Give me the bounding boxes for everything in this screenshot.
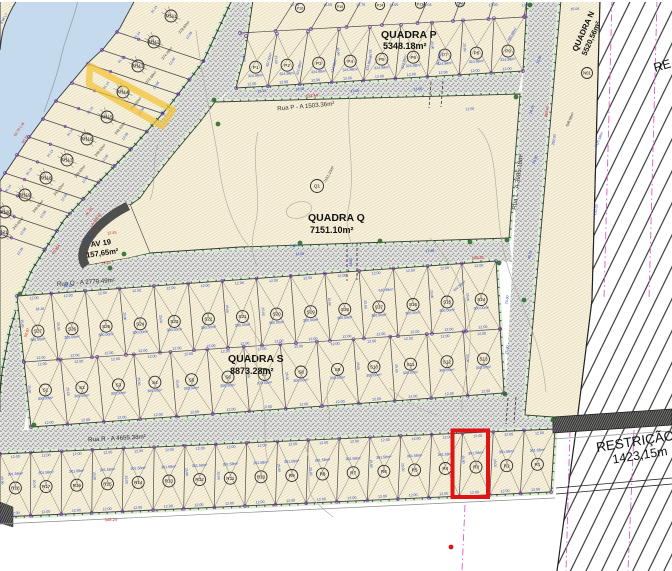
- svg-text:12.00: 12.00: [477, 331, 486, 336]
- svg-text:25.00: 25.00: [27, 385, 32, 393]
- svg-text:25.00: 25.00: [32, 480, 37, 489]
- svg-text:25.00: 25.00: [336, 47, 341, 55]
- svg-text:S19: S19: [307, 309, 316, 314]
- svg-text:12.00: 12.00: [299, 402, 308, 407]
- svg-text:25.00: 25.00: [461, 455, 466, 463]
- svg-text:12.00: 12.00: [148, 354, 157, 359]
- svg-text:12.00: 12.00: [367, 339, 376, 344]
- svg-text:12.00: 12.00: [478, 325, 487, 330]
- svg-text:12.00: 12.00: [350, 439, 359, 444]
- svg-text:25.00: 25.00: [137, 377, 142, 385]
- svg-text:25.00: 25.00: [242, 54, 247, 62]
- svg-text:12.00: 12.00: [442, 435, 451, 440]
- svg-text:25.00: 25.00: [493, 459, 498, 468]
- svg-text:25.00: 25.00: [20, 319, 25, 327]
- svg-text:S21: S21: [238, 314, 247, 319]
- svg-text:QUADRA S: QUADRA S: [228, 353, 284, 365]
- svg-text:R18: R18: [11, 486, 20, 491]
- svg-text:12.00: 12.00: [481, 389, 490, 394]
- svg-text:25.00: 25.00: [363, 300, 368, 309]
- svg-text:12.00: 12.00: [29, 296, 38, 301]
- svg-text:25.00: 25.00: [66, 387, 71, 396]
- svg-text:12.00: 12.00: [375, 74, 384, 79]
- svg-text:12.00: 12.00: [194, 503, 203, 508]
- svg-text:S17: S17: [375, 305, 384, 310]
- svg-text:12.00: 12.00: [11, 454, 20, 459]
- svg-text:166.81: 166.81: [472, 255, 485, 261]
- svg-text:R2: R2: [504, 463, 510, 468]
- svg-text:12.00: 12.00: [133, 505, 142, 510]
- svg-text:S15: S15: [443, 300, 452, 305]
- svg-text:25.00: 25.00: [225, 305, 230, 313]
- svg-text:12.00: 12.00: [240, 341, 249, 346]
- svg-text:12.00: 12.00: [288, 442, 297, 447]
- svg-text:12.00: 12.00: [372, 271, 381, 276]
- svg-text:R12: R12: [195, 477, 204, 482]
- svg-text:12.00: 12.00: [74, 359, 83, 364]
- svg-text:P14: P14: [377, 4, 384, 8]
- svg-text:12.00: 12.00: [504, 432, 513, 437]
- svg-text:22.12: 22.12: [257, 89, 266, 94]
- svg-text:R9: R9: [289, 473, 295, 478]
- svg-text:N01: N01: [583, 71, 591, 76]
- svg-text:348.29: 348.29: [104, 517, 118, 522]
- svg-text:25.00: 25.00: [158, 315, 163, 324]
- svg-text:12.00: 12.00: [102, 507, 111, 512]
- svg-text:R7: R7: [350, 470, 356, 475]
- svg-text:S9: S9: [335, 367, 341, 372]
- svg-text:12.00: 12.00: [410, 330, 419, 335]
- svg-text:12.00: 12.00: [440, 334, 449, 339]
- svg-text:R3: R3: [473, 465, 479, 470]
- svg-text:S13: S13: [479, 357, 488, 362]
- svg-text:25.00: 25.00: [122, 312, 127, 320]
- svg-text:25.00: 25.00: [356, 362, 361, 370]
- svg-text:12.00: 12.00: [347, 496, 356, 501]
- svg-text:P13: P13: [417, 2, 424, 6]
- svg-text:R17: R17: [42, 484, 51, 489]
- svg-text:25.00: 25.00: [394, 364, 399, 373]
- svg-text:R6: R6: [381, 469, 387, 474]
- svg-text:12.00: 12.00: [41, 510, 50, 515]
- svg-text:12.00: 12.00: [445, 392, 454, 397]
- svg-text:12.00: 12.00: [257, 347, 266, 352]
- svg-text:R13: R13: [165, 479, 174, 484]
- svg-text:12.00: 12.00: [103, 450, 112, 455]
- svg-text:25.00: 25.00: [274, 55, 279, 64]
- svg-text:12.00: 12.00: [342, 334, 351, 339]
- svg-text:12.00: 12.00: [166, 286, 175, 291]
- svg-text:25.00: 25.00: [175, 380, 180, 389]
- svg-text:25.00: 25.00: [184, 468, 189, 476]
- svg-text:12.00: 12.00: [404, 336, 413, 341]
- svg-text:P15: P15: [337, 5, 344, 9]
- svg-text:S3: S3: [116, 382, 122, 387]
- svg-text:12.00: 12.00: [372, 397, 381, 402]
- svg-text:25.00: 25.00: [0, 476, 4, 484]
- svg-text:12.00: 12.00: [381, 438, 390, 443]
- svg-text:P7: P7: [442, 53, 448, 58]
- svg-text:12.00: 12.00: [138, 348, 147, 353]
- svg-text:P16: P16: [297, 7, 304, 11]
- svg-text:R5: R5: [412, 468, 418, 473]
- svg-text:12.00: 12.00: [294, 344, 303, 349]
- svg-text:S23: S23: [170, 319, 179, 324]
- svg-text:12.00: 12.00: [378, 494, 387, 499]
- svg-text:18.00: 18.00: [349, 258, 353, 266]
- svg-text:25.00: 25.00: [465, 293, 470, 302]
- svg-text:12.00: 12.00: [36, 355, 45, 360]
- svg-text:S25: S25: [102, 324, 111, 329]
- svg-text:13.00: 13.00: [413, 87, 422, 92]
- svg-text:8873.28m²: 8873.28m²: [230, 366, 274, 376]
- svg-text:12.00: 12.00: [406, 268, 415, 273]
- svg-text:25.00: 25.00: [462, 43, 467, 52]
- svg-text:12.00: 12.00: [64, 293, 73, 298]
- svg-text:12.00: 12.00: [319, 441, 328, 446]
- svg-text:25.00: 25.00: [261, 307, 266, 316]
- svg-text:12.00: 12.00: [331, 342, 340, 347]
- svg-text:P1: P1: [253, 65, 259, 70]
- svg-text:12.00: 12.00: [256, 500, 265, 505]
- svg-text:25.00: 25.00: [56, 322, 61, 331]
- svg-text:12.00: 12.00: [111, 357, 120, 362]
- svg-text:R11: R11: [226, 476, 235, 481]
- svg-text:S22: S22: [204, 317, 213, 322]
- svg-text:12.00: 12.00: [407, 72, 416, 77]
- svg-text:25.00: 25.00: [124, 475, 129, 484]
- svg-text:P3: P3: [316, 61, 322, 66]
- svg-text:13.00: 13.00: [350, 89, 359, 94]
- svg-text:25.00: 25.00: [92, 472, 97, 480]
- svg-text:Q1: Q1: [314, 184, 321, 189]
- svg-text:12.00: 12.00: [502, 67, 511, 72]
- svg-text:12.00: 12.00: [190, 410, 199, 415]
- svg-text:12.00: 12.00: [317, 497, 326, 502]
- svg-text:12.00: 12.00: [164, 504, 173, 509]
- svg-text:12.00: 12.00: [376, 332, 385, 337]
- svg-text:S12: S12: [443, 359, 452, 364]
- svg-text:12.00: 12.00: [225, 501, 234, 506]
- svg-text:12.00: 12.00: [42, 453, 51, 458]
- svg-text:12.00: 12.00: [470, 490, 479, 495]
- svg-text:12.00: 12.00: [531, 487, 540, 492]
- svg-text:12.00: 12.00: [286, 498, 295, 503]
- svg-text:12.00: 12.00: [165, 448, 174, 453]
- svg-text:13.00: 13.00: [389, 3, 398, 8]
- svg-text:P2: P2: [284, 63, 290, 68]
- svg-text:S4: S4: [152, 380, 158, 385]
- svg-text:12.00: 12.00: [500, 489, 509, 494]
- svg-text:12.50: 12.50: [465, 107, 474, 112]
- svg-text:12.00: 12.00: [311, 78, 320, 83]
- svg-text:R14: R14: [134, 480, 143, 485]
- svg-text:R1: R1: [534, 462, 540, 467]
- svg-text:12.00: 12.00: [70, 353, 79, 358]
- svg-text:12.00: 12.00: [117, 415, 126, 420]
- svg-text:S26: S26: [68, 326, 77, 331]
- svg-text:S5: S5: [189, 377, 195, 382]
- svg-text:25.00: 25.00: [401, 463, 406, 472]
- svg-text:12.00: 12.00: [336, 399, 345, 404]
- svg-text:5348.18m²: 5348.18m²: [383, 41, 427, 51]
- svg-text:12.00: 12.00: [45, 420, 54, 425]
- svg-text:12.00: 12.00: [132, 288, 141, 293]
- svg-text:S8: S8: [298, 370, 304, 375]
- svg-text:S10: S10: [370, 364, 379, 369]
- svg-text:12.00: 12.00: [408, 394, 417, 399]
- svg-text:S2: S2: [79, 385, 85, 390]
- svg-text:P4: P4: [347, 59, 353, 64]
- svg-text:12.00: 12.00: [98, 291, 107, 296]
- svg-text:12.00: 12.00: [295, 252, 304, 257]
- svg-text:S14: S14: [477, 297, 486, 302]
- svg-text:12.00: 12.00: [72, 508, 81, 513]
- svg-text:12.00: 12.00: [226, 407, 235, 412]
- svg-text:12.00: 12.00: [235, 281, 244, 286]
- svg-text:12.00: 12.00: [104, 351, 113, 356]
- svg-text:P6: P6: [410, 55, 416, 60]
- svg-text:12.00: 12.00: [279, 80, 288, 85]
- svg-text:S27: S27: [34, 329, 43, 334]
- svg-text:R10: R10: [257, 474, 266, 479]
- svg-text:12.00: 12.00: [303, 276, 312, 281]
- svg-text:18.16: 18.16: [35, 307, 44, 312]
- svg-text:S1: S1: [43, 388, 49, 393]
- svg-text:17.88: 17.88: [425, 249, 434, 254]
- svg-text:QUADRA P: QUADRA P: [381, 29, 437, 41]
- svg-text:12.00: 12.00: [343, 76, 352, 81]
- svg-text:25.00: 25.00: [430, 290, 435, 298]
- svg-text:S11: S11: [407, 362, 415, 367]
- svg-text:S18: S18: [341, 307, 350, 312]
- svg-text:25.00: 25.00: [369, 460, 374, 468]
- svg-text:R8: R8: [320, 472, 326, 477]
- svg-text:12.00: 12.00: [134, 449, 143, 454]
- svg-text:12.00: 12.00: [172, 346, 181, 351]
- svg-text:QUADRA Q: QUADRA Q: [308, 212, 365, 224]
- svg-text:12.00: 12.00: [184, 352, 193, 357]
- svg-text:12.00: 12.00: [535, 431, 544, 436]
- svg-text:12.00: 12.00: [227, 445, 236, 450]
- svg-text:S16: S16: [409, 302, 418, 307]
- svg-text:12.00: 12.00: [11, 511, 20, 516]
- svg-text:S24: S24: [136, 321, 145, 326]
- svg-text:R15: R15: [103, 481, 112, 486]
- svg-text:12.00: 12.00: [196, 446, 205, 451]
- svg-text:25.00: 25.00: [216, 471, 221, 480]
- svg-text:25.00: 25.00: [327, 298, 332, 306]
- svg-text:12.00: 12.00: [439, 70, 448, 75]
- svg-text:12.00: 12.00: [269, 278, 278, 283]
- svg-text:P9: P9: [505, 49, 511, 54]
- svg-text:12.50: 12.50: [295, 87, 304, 92]
- svg-text:P5: P5: [379, 57, 385, 62]
- svg-text:25.00: 25.00: [277, 464, 282, 472]
- svg-text:12.00: 12.00: [440, 266, 449, 271]
- svg-text:15.04: 15.04: [570, 7, 579, 12]
- svg-text:S20: S20: [273, 312, 282, 317]
- svg-text:R4: R4: [442, 466, 448, 471]
- svg-text:12.00: 12.00: [201, 283, 210, 288]
- svg-text:12.00: 12.00: [247, 82, 256, 87]
- svg-text:25.00: 25.00: [285, 372, 290, 381]
- svg-text:12.00: 12.00: [412, 436, 421, 441]
- svg-text:12.00: 12.00: [38, 362, 47, 367]
- svg-text:12.00: 12.00: [72, 452, 81, 457]
- svg-text:R16: R16: [73, 483, 82, 488]
- svg-text:12.00: 12.00: [471, 68, 480, 73]
- svg-text:P8: P8: [474, 51, 480, 56]
- svg-text:12.00: 12.00: [444, 327, 453, 332]
- svg-text:12.00: 12.00: [81, 418, 90, 423]
- svg-text:12.00: 12.00: [274, 339, 283, 344]
- svg-text:12.00: 12.00: [337, 273, 346, 278]
- svg-text:12.00: 12.00: [439, 492, 448, 497]
- svg-text:12.00: 12.00: [409, 493, 418, 498]
- svg-text:15.10: 15.10: [63, 284, 72, 289]
- svg-text:12.00: 12.00: [154, 412, 163, 417]
- svg-text:25.00: 25.00: [430, 41, 435, 49]
- svg-text:12.00: 12.00: [473, 434, 482, 439]
- svg-text:12.00: 12.00: [474, 263, 483, 268]
